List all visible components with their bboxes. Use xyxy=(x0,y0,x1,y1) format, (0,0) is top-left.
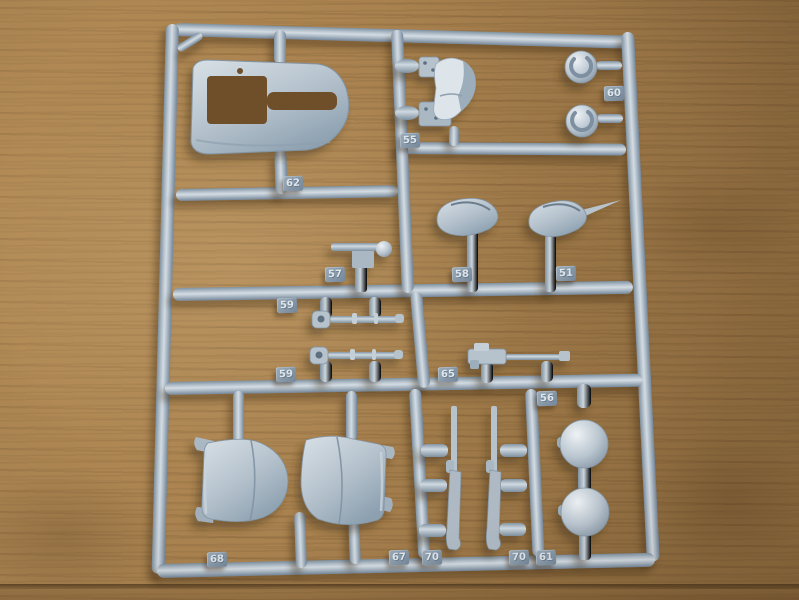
part-machine-gun-65 xyxy=(468,343,570,383)
part-rifle-70-right xyxy=(486,406,527,550)
part-canopy-62 xyxy=(191,60,349,154)
part-number-tag-59-lower: 59 xyxy=(276,367,297,383)
sprue-parts-layer xyxy=(0,0,799,600)
part-number-tag-60: 60 xyxy=(604,86,625,102)
part-number-tag-62: 62 xyxy=(283,176,304,192)
part-number-tag-55: 55 xyxy=(400,133,421,149)
part-number-tag-70-right: 70 xyxy=(509,550,530,566)
part-number-tag-57: 57 xyxy=(325,267,346,283)
part-number-tag-56: 56 xyxy=(537,391,558,407)
part-strut-59-lower xyxy=(310,347,403,382)
part-number-tag-65: 65 xyxy=(438,367,459,383)
part-cowling-67 xyxy=(301,436,395,524)
part-wheel-hubs-60 xyxy=(565,51,598,137)
part-number-tag-70-left: 70 xyxy=(422,550,443,566)
part-number-tag-67: 67 xyxy=(389,550,410,566)
part-cowling-68 xyxy=(194,437,288,523)
part-number-tag-68: 68 xyxy=(207,552,228,568)
photo-model-sprue: 62 55 60 57 58 51 59 59 65 56 68 67 70 7… xyxy=(0,0,799,600)
part-number-tag-59-upper: 59 xyxy=(277,298,298,314)
part-balls-61 xyxy=(557,384,609,560)
part-number-tag-61: 61 xyxy=(536,550,557,566)
part-rifle-70-left xyxy=(419,406,461,550)
part-number-tag-58: 58 xyxy=(452,267,473,283)
part-strut-59-upper xyxy=(312,297,404,328)
part-seat-55 xyxy=(395,57,476,126)
part-number-tag-51: 51 xyxy=(556,266,577,282)
